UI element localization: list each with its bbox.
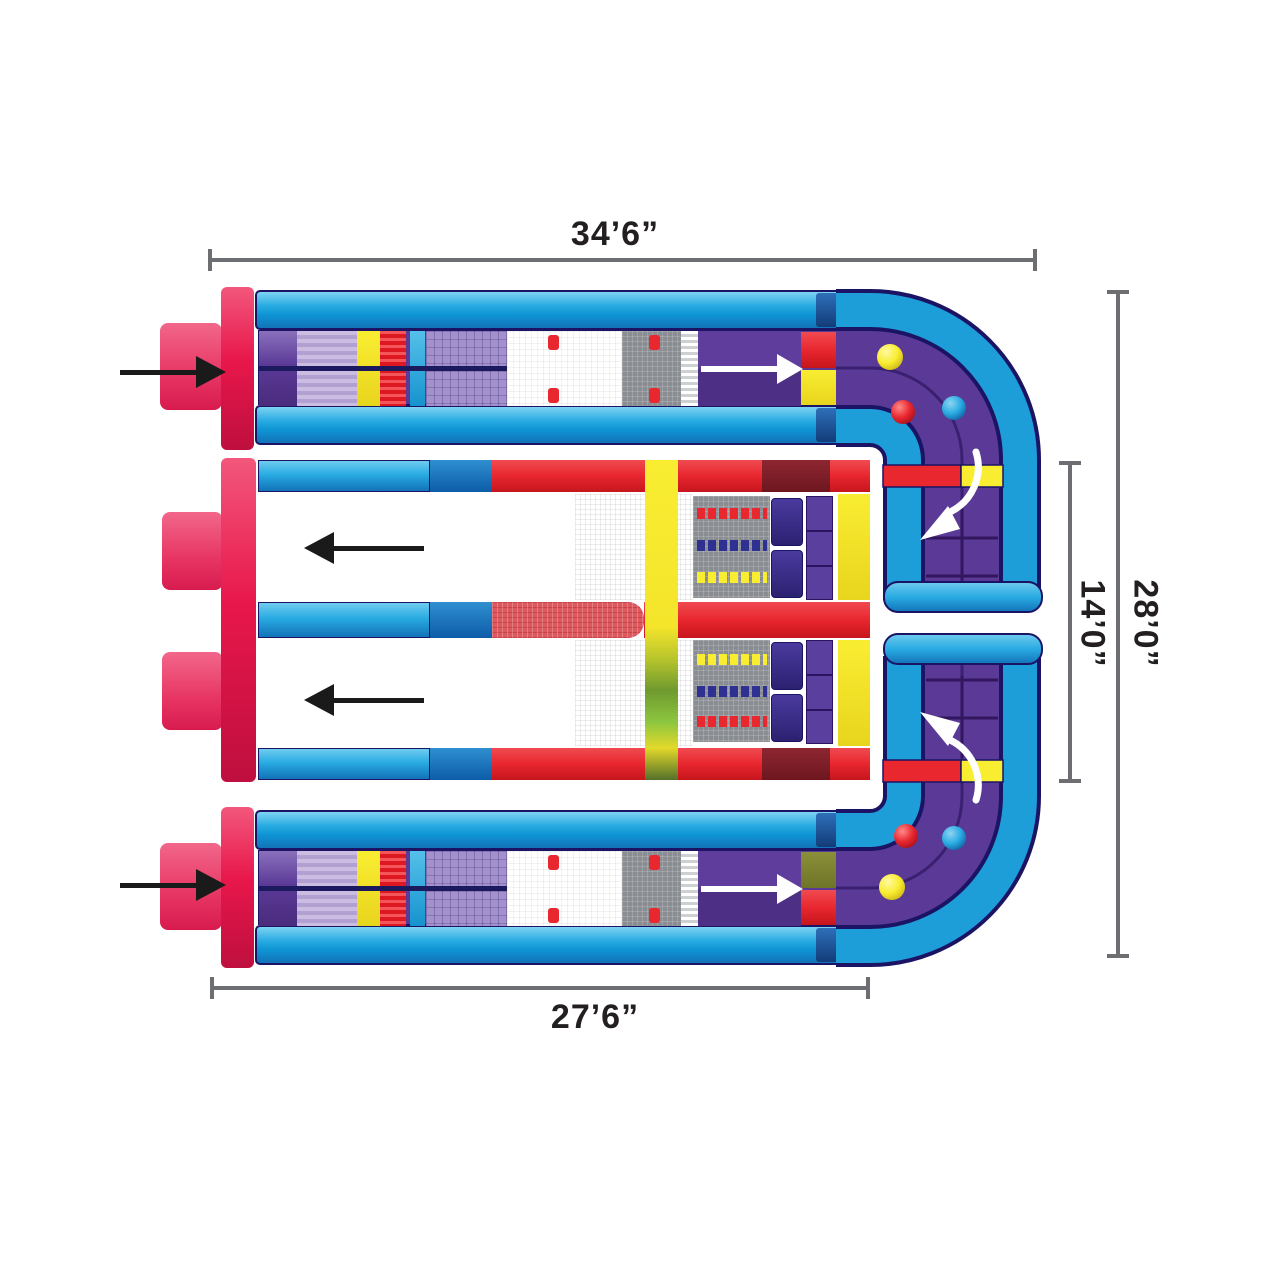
yellow-post-right-upper: [838, 494, 870, 600]
top-lane-tube-dark-segment-1: [816, 293, 842, 327]
finish-wall-middle: [221, 458, 256, 782]
bottom-lane-tube-upper: [255, 810, 843, 850]
obstacle-white-rollers: [681, 851, 698, 926]
bottom-lane-tube-lower: [255, 925, 843, 965]
gray-mesh-panel-lower: [693, 640, 770, 742]
obstacle-white-panel: [507, 331, 622, 406]
dimension-top-tick-right: [1033, 249, 1037, 271]
navy-block: [771, 550, 803, 598]
gray-mesh-panel-upper: [693, 496, 770, 598]
curve-crossbar-red: [883, 760, 961, 782]
dimension-top-label: 34’6”: [520, 215, 710, 254]
dimension-right-inner-tick-top: [1059, 461, 1081, 465]
red-marker: [649, 908, 660, 923]
return-arrow-lower-lane: [332, 698, 424, 703]
navy-block: [771, 642, 803, 690]
top-lane-tube-upper: [255, 290, 843, 330]
dimension-right-outer-tick-top: [1107, 290, 1129, 294]
inner-end-bar-lower: [884, 634, 1042, 664]
obstacle-white-panel: [507, 851, 622, 926]
middle-bottom-border-maroon: [762, 748, 830, 780]
navy-block: [771, 498, 803, 546]
middle-top-border-red: [492, 460, 762, 492]
dimension-top-tick-left: [208, 249, 212, 271]
popup-row-yellow: [697, 572, 767, 583]
center-crossbar-mesh-red: [492, 602, 644, 638]
middle-top-border-red2: [830, 460, 870, 492]
top-lane-tube-dark-segment-2: [816, 408, 842, 442]
ball-blue-icon: [942, 826, 966, 850]
exit-block-upper: [162, 512, 223, 590]
ball-yellow-icon: [879, 874, 905, 900]
middle-top-border-maroon: [762, 460, 830, 492]
exit-block-lower: [162, 652, 223, 730]
lane-center-line: [259, 886, 507, 891]
popup-row-navy: [697, 686, 767, 697]
dimension-top-line: [210, 258, 1037, 262]
yellow-post-right-lower: [838, 640, 870, 746]
dimension-right-inner-tick-bottom: [1059, 779, 1081, 783]
curve-crossbar-yellow: [961, 465, 1003, 487]
center-divider-lightblue: [258, 602, 430, 638]
popup-row-red: [697, 716, 767, 727]
red-marker: [548, 908, 559, 923]
return-arrow-upper-lane: [332, 546, 424, 551]
middle-top-border-lightblue: [258, 460, 430, 492]
dimension-right-inner-line: [1068, 463, 1072, 783]
dimension-bottom-line: [212, 986, 870, 990]
entry-arrow-bottom-head-icon: [196, 869, 226, 901]
dimension-bottom-label: 27’6”: [500, 998, 690, 1037]
middle-bottom-border-darkblue: [430, 748, 492, 780]
entry-arrow-bottom: [120, 883, 200, 888]
popup-row-yellow: [697, 654, 767, 665]
end-block-red: [801, 890, 842, 925]
red-marker: [548, 335, 559, 350]
middle-bottom-border-lightblue: [258, 748, 430, 780]
dimension-bottom-tick-right: [866, 977, 870, 999]
purple-block-seams: [926, 676, 998, 758]
top-lane-tube-lower: [255, 405, 843, 445]
ball-yellow-icon: [877, 344, 903, 370]
uturn-arrow-upper-curve-head-icon: [920, 506, 960, 540]
middle-top-border-darkblue: [430, 460, 492, 492]
purple-block-column-lower: [806, 640, 833, 744]
purple-block-seams: [926, 498, 998, 580]
popup-row-red: [697, 508, 767, 519]
lane-center-line: [259, 366, 507, 371]
red-marker: [649, 855, 660, 870]
dimension-right-outer-tick-bottom: [1107, 954, 1129, 958]
return-arrow-upper-lane-head-icon: [304, 532, 334, 564]
forward-arrow-top-lane-head-icon: [777, 354, 803, 384]
uturn-arrow-lower-curve: [950, 740, 978, 800]
purple-block-column-upper: [806, 496, 833, 600]
middle-bottom-border-red: [492, 748, 762, 780]
forward-arrow-top-lane: [701, 366, 779, 372]
return-arrow-lower-lane-head-icon: [304, 684, 334, 716]
bottom-lane-interior: [258, 850, 843, 925]
ball-red-icon: [891, 400, 915, 424]
inner-end-bar-upper: [884, 582, 1042, 612]
navy-block: [771, 694, 803, 742]
dimension-right-outer-line: [1116, 292, 1120, 958]
forward-arrow-bottom-lane-head-icon: [777, 874, 803, 904]
red-marker: [649, 388, 660, 403]
dimension-bottom-tick-left: [210, 977, 214, 999]
bottom-lane-tube-dark-segment-1: [816, 813, 842, 847]
red-marker: [548, 855, 559, 870]
entry-arrow-top: [120, 370, 200, 375]
uturn-arrow-lower-curve-head-icon: [920, 712, 960, 746]
popup-row-navy: [697, 540, 767, 551]
red-marker: [649, 335, 660, 350]
yellow-tower-center: [645, 460, 678, 780]
entry-arrow-top-head-icon: [196, 356, 226, 388]
ball-red-icon: [894, 824, 918, 848]
dimension-right-inner-label: 14’0”: [1073, 554, 1112, 694]
obstacle-white-rollers: [681, 331, 698, 406]
middle-bottom-border-red2: [830, 748, 870, 780]
ball-blue-icon: [942, 396, 966, 420]
red-marker: [548, 388, 559, 403]
dimension-right-outer-label: 28’0”: [1126, 554, 1165, 694]
end-block-olive: [801, 852, 842, 888]
end-block-red: [801, 332, 842, 368]
curve-crossbar-red: [883, 465, 961, 487]
forward-arrow-bottom-lane: [701, 886, 779, 892]
end-block-yellow: [801, 370, 842, 405]
bottom-lane-tube-dark-segment-2: [816, 928, 842, 962]
curve-crossbar-yellow: [961, 760, 1003, 782]
uturn-arrow-upper-curve: [950, 452, 978, 512]
center-divider-darkblue: [430, 602, 492, 638]
course-diagram: 34’6” 27’6” 28’0” 14’0”: [0, 0, 1280, 1280]
top-lane-interior: [258, 330, 843, 405]
